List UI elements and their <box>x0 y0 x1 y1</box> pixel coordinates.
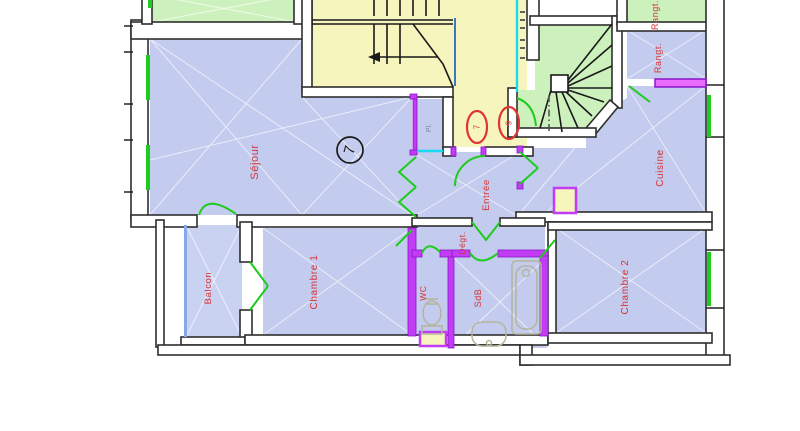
label-sejour: Séjour <box>249 144 261 179</box>
door-badge-7-number: 7 <box>473 124 482 129</box>
label-wc: WC <box>418 285 428 300</box>
label-chambre2: Chambre 2 <box>620 260 631 315</box>
floor-plan-page: 7 7 9 Séjour Entrée Cuisine Rangt. Rangt… <box>0 0 800 431</box>
partition-jamb-6 <box>410 94 417 99</box>
partition-wc-top-b <box>440 250 452 257</box>
partition-jamb-1 <box>451 147 456 156</box>
partition-jamb-3 <box>517 146 523 153</box>
label-sdb: SdB <box>473 289 483 308</box>
label-entree: Entrée <box>481 179 492 211</box>
wall-outer-left <box>131 20 148 220</box>
label-cuisine: Cuisine <box>655 149 666 187</box>
room-storage-top-right <box>627 0 706 22</box>
label-chambre1: Chambre 1 <box>309 255 320 310</box>
wall-stair-left <box>302 0 312 90</box>
floor-plan-drawing: 7 7 9 Séjour Entrée Cuisine Rangt. Rangt… <box>0 0 800 431</box>
wall-outer-left-lower <box>156 220 164 347</box>
wall-landing-right <box>527 0 539 60</box>
balcon-left-edge <box>184 225 187 337</box>
partition-jamb-5 <box>410 150 417 155</box>
partition-chambre1-right <box>408 228 416 336</box>
wall-balcon-right-top <box>240 222 252 262</box>
label-rangement-top: Rangt. <box>650 0 660 30</box>
wall-landing-bottom-b <box>485 147 533 156</box>
wall-storage2-bottom <box>617 22 712 31</box>
wall-outer-bottom-a <box>158 345 520 355</box>
wall-landing-left <box>443 97 453 152</box>
duct-cuisine <box>554 188 576 213</box>
label-balcon: Balcon <box>203 272 214 305</box>
partition-wc-right <box>448 256 454 348</box>
wall-entree-bottom-a <box>412 218 472 226</box>
door-badge-9-number: 9 <box>505 120 514 125</box>
wall-outer-bottom-b <box>520 355 730 365</box>
partition-wc-top-a <box>412 250 422 257</box>
wall-top-band <box>131 22 312 39</box>
wall-balcon-bottom <box>181 337 245 345</box>
room-storage-top-left <box>152 0 296 22</box>
label-degagement: Dégt. <box>457 231 467 254</box>
wall-chambre2-top <box>548 222 712 230</box>
wall-chambre2-left <box>548 222 556 335</box>
rangement-door-band <box>655 79 706 87</box>
label-rangement: Rangt. <box>653 43 663 73</box>
label-placard: Pl. <box>426 124 433 132</box>
wall-stair-bottom <box>302 87 453 97</box>
partition-placard-edge <box>413 99 417 152</box>
wall-spiral-bottom <box>508 128 596 137</box>
wall-spiral-top <box>530 16 625 25</box>
wall-sejour-bottom-b <box>237 215 417 227</box>
partition-jamb-2 <box>481 147 486 156</box>
wall-entree-bottom-b <box>500 218 545 226</box>
wall-chambre2-bottom <box>548 333 712 343</box>
